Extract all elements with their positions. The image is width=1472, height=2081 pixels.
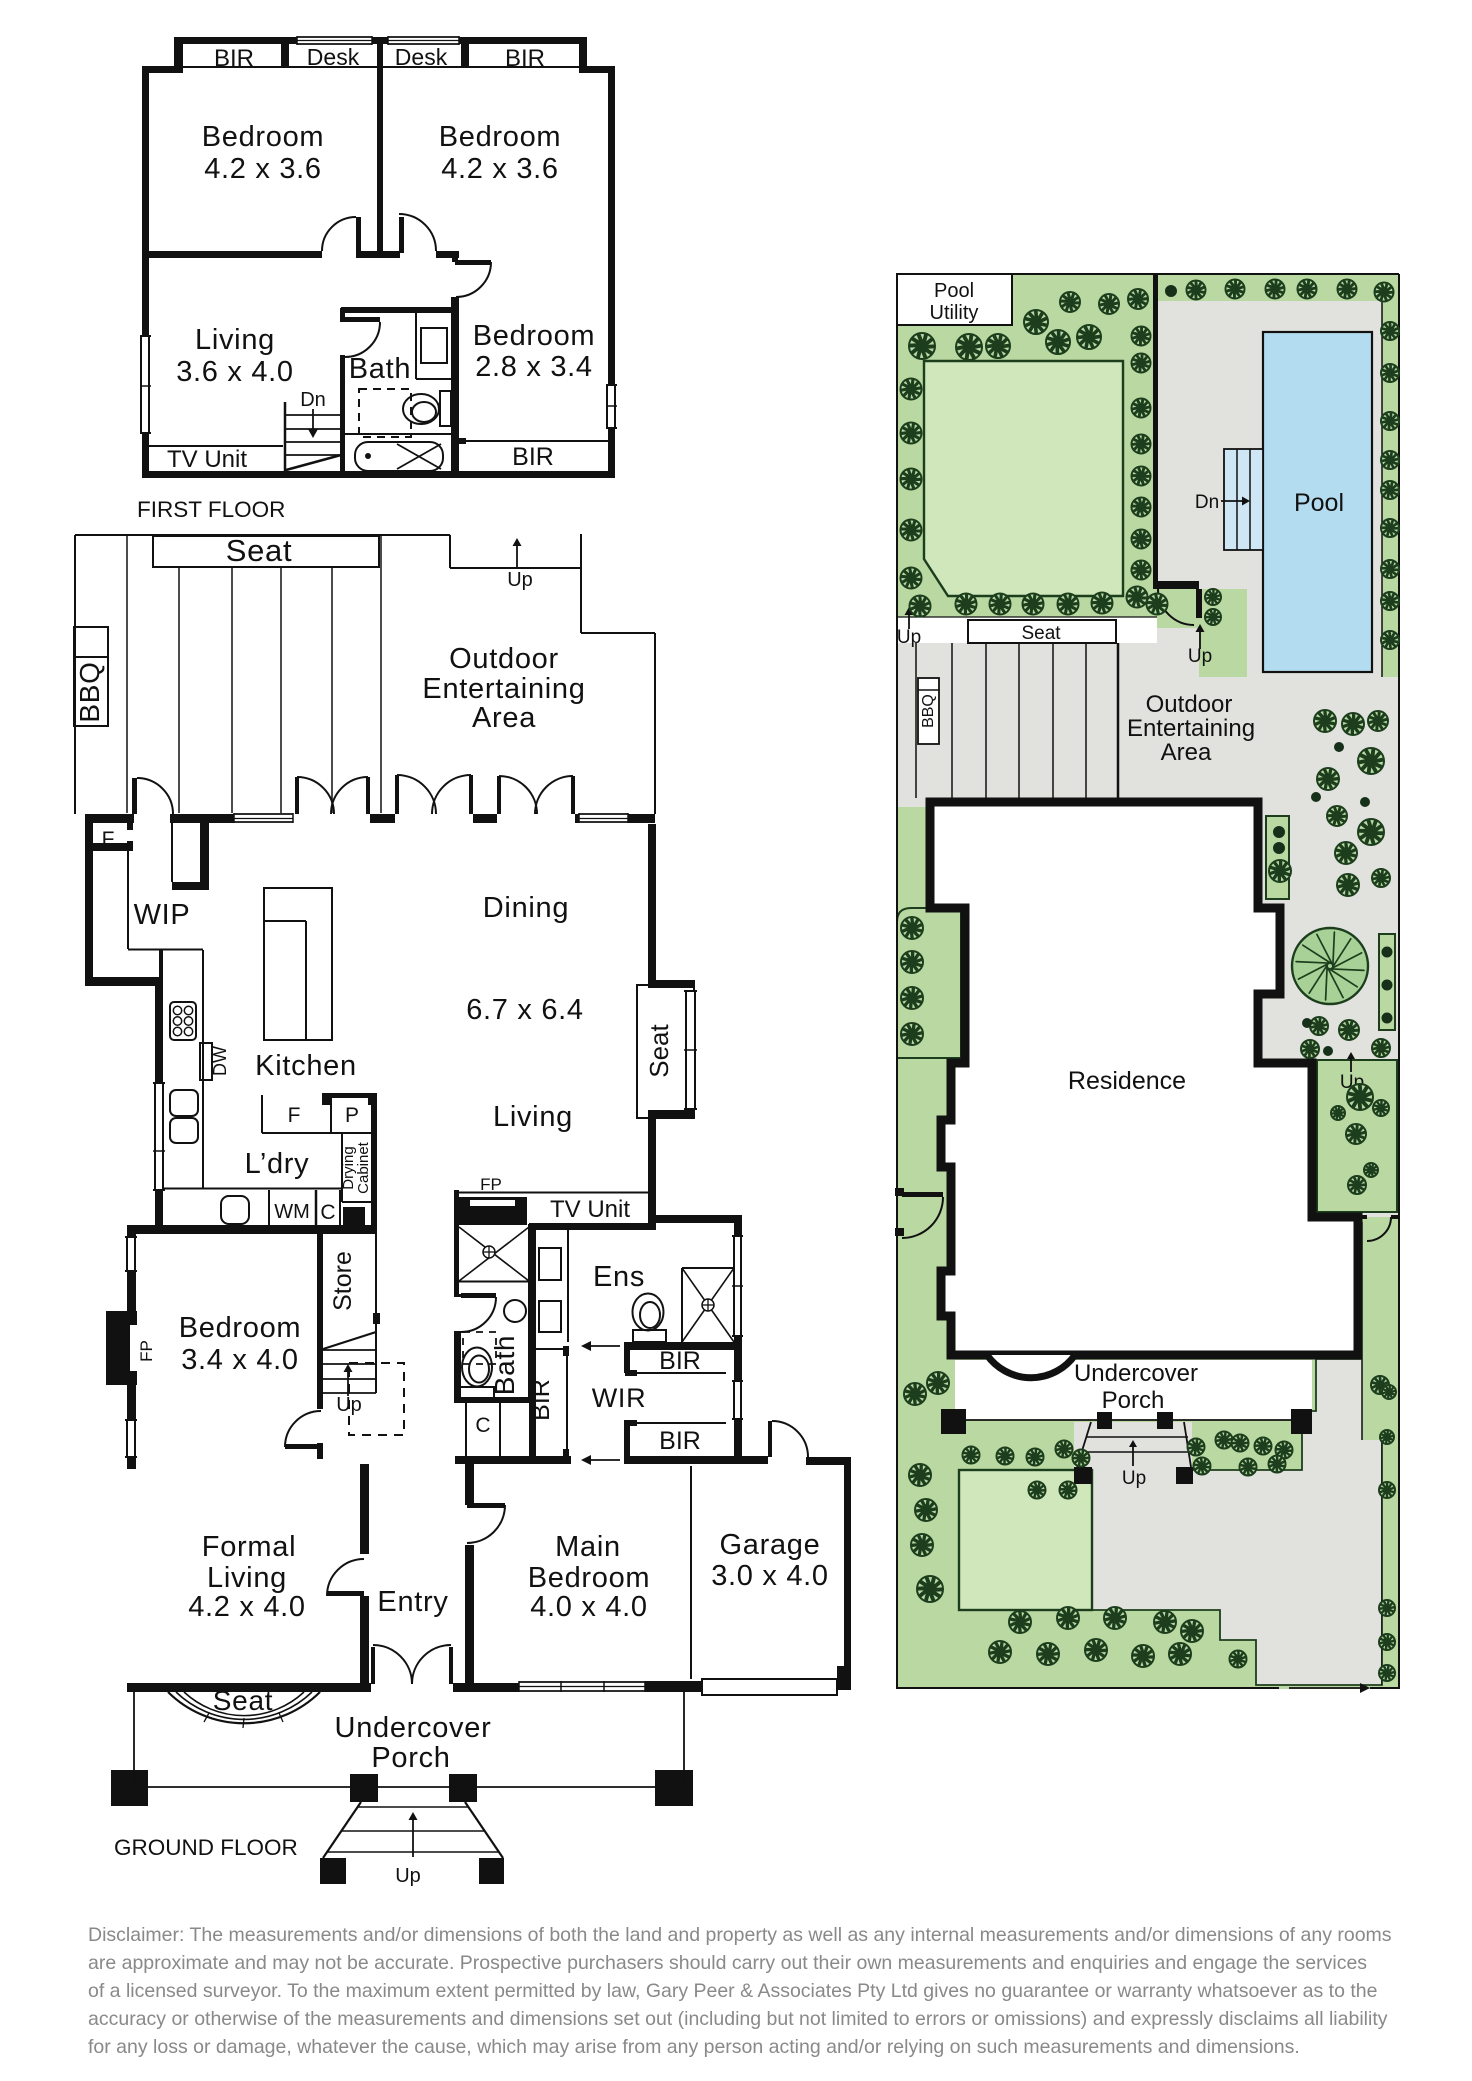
svg-text:Living: Living	[195, 324, 275, 356]
svg-text:Bedroom: Bedroom	[473, 320, 596, 352]
svg-text:Disclaimer: The measurements a: Disclaimer: The measurements and/or dime…	[88, 1924, 1392, 1946]
svg-text:accuracy or otherwise of the m: accuracy or otherwise of the measurement…	[88, 2008, 1388, 2030]
svg-text:Pool: Pool	[1294, 489, 1344, 517]
svg-text:Bedroom: Bedroom	[528, 1562, 651, 1594]
svg-text:P: P	[345, 1104, 359, 1127]
svg-text:Outdoor: Outdoor	[449, 643, 559, 675]
svg-text:Cabinet: Cabinet	[355, 1141, 372, 1194]
svg-text:C: C	[320, 1201, 335, 1224]
svg-text:Dn: Dn	[1195, 492, 1219, 513]
svg-text:L’dry: L’dry	[245, 1148, 310, 1180]
svg-text:Dining: Dining	[483, 892, 569, 924]
svg-text:are approximate and may not be: are approximate and may not be accurate.…	[88, 1952, 1367, 1974]
svg-text:Living: Living	[207, 1562, 287, 1594]
svg-text:Up: Up	[395, 1865, 421, 1887]
svg-text:Undercover: Undercover	[335, 1712, 492, 1744]
svg-text:BIR: BIR	[505, 45, 545, 72]
svg-text:Seat: Seat	[644, 1023, 674, 1077]
svg-text:6.7 x 6.4: 6.7 x 6.4	[466, 994, 584, 1026]
svg-text:FP: FP	[137, 1340, 156, 1362]
svg-text:Entry: Entry	[377, 1586, 448, 1618]
svg-text:Residence: Residence	[1068, 1067, 1186, 1095]
svg-text:BIR: BIR	[527, 1379, 555, 1421]
svg-text:Formal: Formal	[202, 1531, 296, 1563]
svg-text:Bath: Bath	[489, 1335, 520, 1395]
svg-text:2.8 x 3.4: 2.8 x 3.4	[475, 351, 593, 383]
svg-text:BIR: BIR	[214, 45, 254, 72]
svg-text:Bath: Bath	[349, 353, 411, 385]
svg-text:Entertaining: Entertaining	[1127, 715, 1255, 742]
svg-text:DW: DW	[210, 1046, 230, 1076]
svg-text:Up: Up	[1122, 1468, 1146, 1489]
svg-text:BBQ: BBQ	[74, 661, 105, 722]
svg-text:Store: Store	[329, 1251, 357, 1311]
svg-text:Outdoor: Outdoor	[1146, 691, 1233, 718]
svg-text:Entertaining: Entertaining	[422, 673, 585, 705]
svg-text:Up: Up	[507, 569, 533, 591]
svg-text:BIR: BIR	[512, 443, 554, 471]
svg-text:Desk: Desk	[307, 44, 360, 70]
svg-text:4.0 x 4.0: 4.0 x 4.0	[530, 1591, 648, 1623]
svg-text:Garage: Garage	[720, 1529, 821, 1561]
svg-text:Seat: Seat	[226, 533, 293, 568]
svg-text:BIR: BIR	[659, 1347, 701, 1375]
svg-text:Porch: Porch	[371, 1742, 450, 1774]
svg-text:Ens: Ens	[593, 1261, 645, 1293]
svg-text:C: C	[475, 1414, 490, 1437]
svg-text:Pool: Pool	[934, 280, 974, 302]
svg-text:Undercover: Undercover	[1074, 1360, 1198, 1387]
svg-text:Utility: Utility	[930, 302, 979, 324]
svg-text:BIR: BIR	[659, 1427, 701, 1455]
svg-text:Kitchen: Kitchen	[255, 1050, 357, 1082]
svg-text:3.4 x 4.0: 3.4 x 4.0	[181, 1344, 299, 1376]
svg-text:Main: Main	[555, 1531, 621, 1563]
svg-text:Up: Up	[897, 627, 921, 648]
svg-text:GROUND FLOOR: GROUND FLOOR	[114, 1835, 298, 1860]
svg-text:FIRST FLOOR: FIRST FLOOR	[137, 497, 285, 522]
svg-text:TV Unit: TV Unit	[550, 1196, 630, 1223]
svg-text:Area: Area	[1161, 739, 1212, 766]
svg-text:Up: Up	[1188, 646, 1212, 667]
svg-text:Porch: Porch	[1102, 1387, 1165, 1414]
svg-text:4.2 x 3.6: 4.2 x 3.6	[204, 153, 322, 185]
svg-text:BBQ: BBQ	[920, 694, 937, 728]
svg-text:FP: FP	[480, 1175, 502, 1194]
svg-text:Bedroom: Bedroom	[179, 1312, 302, 1344]
svg-text:WM: WM	[274, 1201, 310, 1223]
svg-text:WIP: WIP	[134, 899, 191, 931]
svg-text:Seat: Seat	[213, 1685, 273, 1716]
svg-text:for any loss or damage, whatev: for any loss or damage, whatever the cau…	[88, 2036, 1300, 2058]
svg-text:of a licensed surveyor. To the: of a licensed surveyor. To the maximum e…	[88, 1980, 1377, 2002]
svg-text:Area: Area	[472, 702, 536, 734]
svg-text:Bedroom: Bedroom	[439, 121, 562, 153]
svg-text:WIR: WIR	[592, 1383, 647, 1413]
svg-text:F: F	[102, 828, 115, 851]
svg-text:Desk: Desk	[395, 44, 448, 70]
svg-text:TV Unit: TV Unit	[167, 446, 247, 473]
svg-text:3.0 x 4.0: 3.0 x 4.0	[711, 1560, 829, 1592]
svg-text:3.6 x 4.0: 3.6 x 4.0	[176, 356, 294, 388]
svg-text:Seat: Seat	[1021, 623, 1061, 644]
svg-text:Living: Living	[493, 1101, 573, 1133]
svg-text:Dn: Dn	[300, 389, 326, 411]
svg-text:F: F	[288, 1104, 301, 1127]
svg-text:Bedroom: Bedroom	[202, 121, 325, 153]
svg-text:4.2 x 3.6: 4.2 x 3.6	[441, 153, 559, 185]
svg-text:4.2 x 4.0: 4.2 x 4.0	[188, 1591, 306, 1623]
